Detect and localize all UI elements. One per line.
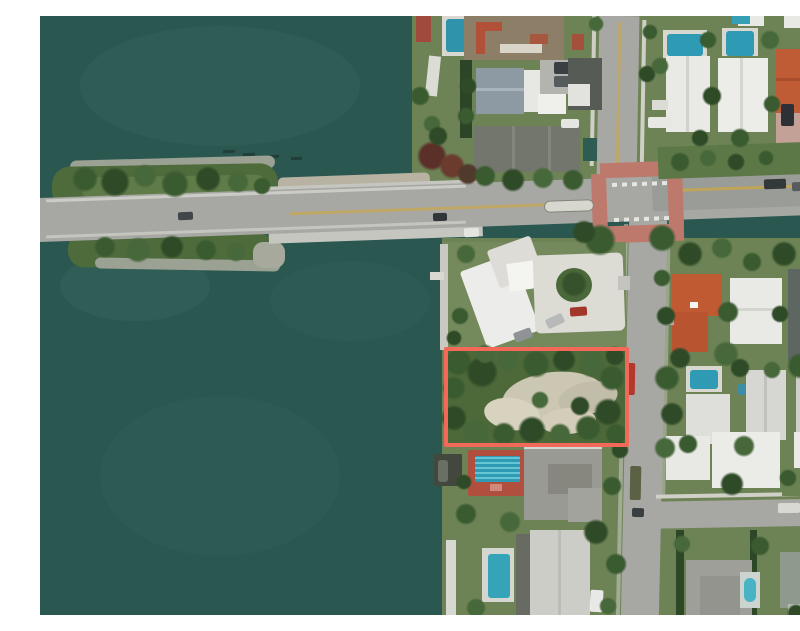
nw-gray-blue-ridge — [476, 88, 524, 91]
tree — [733, 435, 755, 457]
breakwater-piling-4 — [291, 157, 302, 160]
nw-white-wing-2 — [538, 94, 566, 114]
tree — [532, 167, 554, 189]
nw-big-gray-roof-seam-1 — [512, 126, 515, 172]
tree — [456, 474, 472, 490]
tree — [750, 536, 770, 556]
tree — [583, 519, 609, 545]
ne-parked-car — [781, 104, 794, 126]
tree — [699, 149, 717, 167]
tree — [670, 152, 690, 172]
sw-lap-pool — [475, 456, 520, 482]
tree — [160, 235, 184, 259]
sw-pool-steps — [490, 484, 502, 491]
tree — [678, 434, 698, 454]
tree — [654, 365, 680, 391]
tree — [642, 24, 658, 40]
ne-parked-car-2 — [648, 117, 672, 128]
ne-pool-1 — [667, 34, 703, 56]
ne-pool-2 — [726, 31, 754, 56]
tree — [691, 129, 709, 147]
tree — [771, 305, 789, 323]
green-truck-on-street — [630, 466, 642, 500]
tree — [446, 330, 462, 346]
tree — [605, 553, 627, 575]
nw-dark-roof-white-wing — [568, 84, 590, 106]
tree — [456, 244, 476, 264]
tree — [787, 353, 800, 379]
tree — [742, 252, 762, 272]
ne-house-1-ridge — [686, 56, 689, 132]
sw-house-2-ridge — [558, 530, 561, 615]
sw-boat — [438, 460, 448, 482]
water-sheen-3 — [270, 261, 430, 341]
sw-house-2-dark-wing — [516, 534, 530, 615]
ne-house-3-hip-line — [776, 78, 800, 81]
me-orange-roof-dot — [690, 302, 698, 308]
tree — [727, 153, 745, 171]
me-pool — [690, 370, 718, 389]
tree — [133, 164, 157, 188]
ne-white-platform — [652, 100, 668, 110]
aerial-photo — [40, 16, 800, 615]
tree — [72, 166, 98, 192]
ne-house-2-roof — [718, 58, 768, 132]
tree — [648, 224, 676, 252]
sw-pool-2 — [488, 554, 510, 598]
estate-red-car — [570, 306, 588, 316]
me-orange-roof-main — [672, 274, 722, 316]
car-side-street-1 — [778, 503, 800, 513]
tree — [656, 306, 676, 326]
se-pool — [744, 578, 756, 602]
tree — [602, 476, 622, 496]
car-street-south — [632, 508, 644, 517]
ne-house-2-ridge — [740, 58, 743, 132]
tree — [466, 598, 486, 615]
car-road-east-1 — [764, 179, 786, 190]
estate-dock — [430, 272, 444, 280]
tree — [195, 166, 221, 192]
nw-brick-piece — [530, 34, 548, 44]
ne-top-pool — [732, 16, 750, 24]
nw-roof-white-strip — [500, 44, 542, 53]
tree — [457, 107, 475, 125]
water-sheen-1 — [80, 26, 360, 146]
tree — [717, 301, 739, 323]
nw-chimney — [572, 34, 584, 50]
tree — [763, 95, 781, 113]
me-lower-roof-2-ridge — [764, 370, 767, 440]
tree — [125, 237, 151, 263]
tree — [673, 535, 691, 553]
breakwater-piling-1 — [223, 150, 235, 153]
parcel-boundary — [444, 347, 629, 447]
tree — [227, 171, 249, 193]
tree — [455, 503, 477, 525]
tree — [720, 472, 744, 496]
car-on-bridge-2 — [433, 213, 447, 221]
tree — [763, 361, 781, 379]
estate-drive-connection — [618, 276, 630, 290]
tree — [702, 86, 722, 106]
tree — [653, 269, 671, 287]
nw-gray-blue-roof — [476, 68, 524, 114]
me-dark-roof — [788, 269, 800, 361]
tree — [771, 241, 797, 267]
tree — [758, 150, 774, 166]
tree — [588, 16, 604, 32]
tree — [787, 604, 800, 615]
nw-white-van — [561, 119, 579, 128]
sw-seawall — [446, 540, 456, 615]
tree — [451, 307, 469, 325]
tree — [410, 86, 430, 106]
tree — [253, 177, 271, 195]
tree — [459, 77, 477, 95]
tree — [760, 30, 780, 50]
tree — [730, 358, 750, 378]
tree — [711, 237, 733, 259]
car-road-east-2 — [792, 182, 800, 192]
tree — [699, 31, 717, 49]
jetty-rock-point — [253, 242, 285, 268]
tree — [474, 165, 496, 187]
tree — [501, 168, 525, 192]
tree — [730, 128, 750, 148]
tree — [599, 597, 617, 615]
tree — [499, 511, 521, 533]
tree — [161, 170, 189, 198]
sw-gray-house-ext — [568, 488, 602, 522]
water-sheen-4 — [100, 396, 340, 556]
tree — [779, 469, 797, 487]
se-green-roof-house — [780, 552, 800, 608]
tree — [428, 126, 448, 146]
shore-red-structure — [416, 16, 431, 42]
tree — [195, 239, 217, 261]
me-orange-roof-lower — [672, 312, 708, 352]
tree — [562, 169, 584, 191]
nw-brick-wall-2 — [476, 22, 485, 54]
ne-top-roof-2 — [784, 16, 800, 28]
tree — [572, 220, 596, 244]
tree — [654, 437, 676, 459]
se-concrete-roof-mottle — [700, 576, 740, 615]
road-median — [544, 199, 594, 213]
tree — [677, 241, 703, 267]
nw-green-tarp — [583, 138, 597, 161]
nw-big-gray-roof-seam-2 — [548, 126, 551, 172]
tree — [561, 271, 587, 297]
nw-hedge — [460, 60, 472, 138]
tree — [651, 57, 669, 75]
tree — [660, 402, 684, 426]
truck-at-shore — [464, 228, 479, 238]
tree — [94, 236, 116, 258]
tree — [100, 167, 130, 197]
car-on-bridge-1 — [178, 212, 193, 221]
tree — [226, 242, 246, 262]
